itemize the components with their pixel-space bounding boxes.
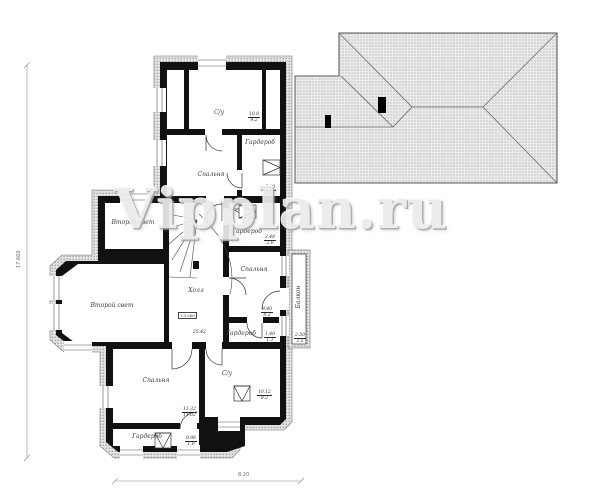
area-stamp-garderob-top: 6.106.2 bbox=[264, 185, 276, 196]
area-stamp-garderob-bottom: 0.961.0 bbox=[185, 436, 197, 447]
room-label-su-bottom: С/у bbox=[222, 371, 232, 377]
room-label-garderob-bottom: Гардероб bbox=[132, 434, 162, 440]
area-stamp-garderob-mid: 2.482.0 bbox=[264, 235, 276, 246]
room-label-vtoroy-svet-big: Второй свет bbox=[90, 303, 133, 309]
room-label-garderob-mid2: Гардероб bbox=[226, 331, 256, 337]
room-label-spalnya-mid: Спальня bbox=[240, 267, 267, 273]
floor-plan-page: С/у Гардероб Спальня Второй свет Гардеро… bbox=[0, 0, 600, 492]
elevation-marker: +3.300 bbox=[178, 312, 197, 319]
room-label-spalnya-bottom: Спальня bbox=[142, 378, 169, 384]
area-stamp-spalnya-bottom: 11.3211.02 bbox=[182, 407, 197, 418]
chimney bbox=[378, 97, 386, 113]
hall-area-note: 25.42 bbox=[193, 330, 206, 335]
room-label-balkon: Балкон bbox=[296, 286, 302, 309]
room-label-garderob-mid: Гардероб bbox=[232, 229, 262, 235]
room-label-spalnya-top: Спальня bbox=[197, 172, 224, 178]
dimension-left-label: 17.660 bbox=[16, 251, 22, 269]
dimension-bottom-label: 8.20 bbox=[238, 472, 249, 478]
chimney bbox=[325, 115, 331, 128]
area-stamp-spalnya-mid: 8.408.2 bbox=[261, 307, 273, 318]
area-stamp-garderob-mid2: 1.401.1 bbox=[264, 332, 276, 343]
room-label-kholl: Холл bbox=[188, 288, 204, 294]
area-stamp-su-bottom: 10.128.2 bbox=[257, 390, 272, 401]
floor-plan-drawing bbox=[0, 0, 600, 492]
room-label-su-top: С/у bbox=[214, 110, 224, 116]
room-label-vtoroy-svet-small: Второй свет bbox=[111, 220, 154, 226]
area-stamp-su-top: 10.89.2 bbox=[248, 112, 260, 123]
roof-plan bbox=[295, 33, 557, 183]
area-stamp-balkon: 2.502.5 bbox=[294, 333, 306, 344]
room-label-garderob-top: Гардероб bbox=[245, 140, 275, 146]
